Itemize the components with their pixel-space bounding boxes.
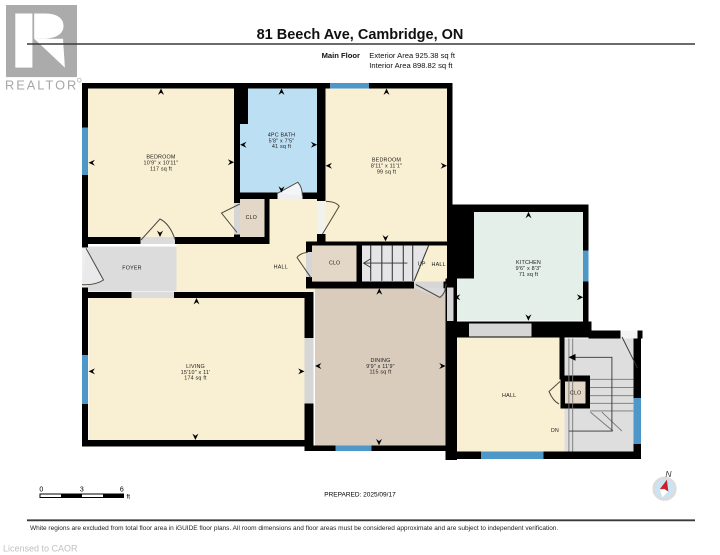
svg-text:81 Beech Ave, Cambridge, ON: 81 Beech Ave, Cambridge, ON xyxy=(257,27,464,43)
svg-text:99 sq ft: 99 sq ft xyxy=(377,169,397,175)
svg-text:CLO: CLO xyxy=(329,261,340,267)
svg-text:DN: DN xyxy=(551,428,559,434)
svg-text:Main Floor: Main Floor xyxy=(322,51,360,60)
svg-text:117 sq ft: 117 sq ft xyxy=(150,166,172,172)
svg-text:Exterior Area 925.38 sq ft: Exterior Area 925.38 sq ft xyxy=(369,51,456,60)
svg-text:71 sq ft: 71 sq ft xyxy=(519,272,539,278)
svg-text:41 sq ft: 41 sq ft xyxy=(272,144,292,150)
svg-text:White regions are excluded fro: White regions are excluded from total fl… xyxy=(30,525,558,532)
svg-text:PREPARED: 2025/09/17: PREPARED: 2025/09/17 xyxy=(324,491,396,498)
svg-text:3: 3 xyxy=(80,487,84,494)
svg-text:174 sq ft: 174 sq ft xyxy=(184,376,207,382)
svg-text:N: N xyxy=(665,469,672,479)
svg-text:UP: UP xyxy=(418,262,426,268)
svg-text:Interior Area 898.82 sq ft: Interior Area 898.82 sq ft xyxy=(369,61,453,70)
svg-text:REALTOR: REALTOR xyxy=(5,78,78,93)
svg-text:CLO: CLO xyxy=(570,390,581,396)
svg-text:Licensed to CAOR: Licensed to CAOR xyxy=(3,544,78,554)
svg-text:6: 6 xyxy=(120,487,124,494)
svg-text:115 sq ft: 115 sq ft xyxy=(369,370,391,376)
svg-text:HALL: HALL xyxy=(274,265,288,271)
svg-text:HALL: HALL xyxy=(502,393,516,399)
svg-text:HALL: HALL xyxy=(432,262,446,268)
svg-text:FOYER: FOYER xyxy=(122,266,142,272)
svg-text:ft: ft xyxy=(127,494,131,501)
svg-text:0: 0 xyxy=(39,487,43,494)
svg-text:CLO: CLO xyxy=(246,215,257,221)
